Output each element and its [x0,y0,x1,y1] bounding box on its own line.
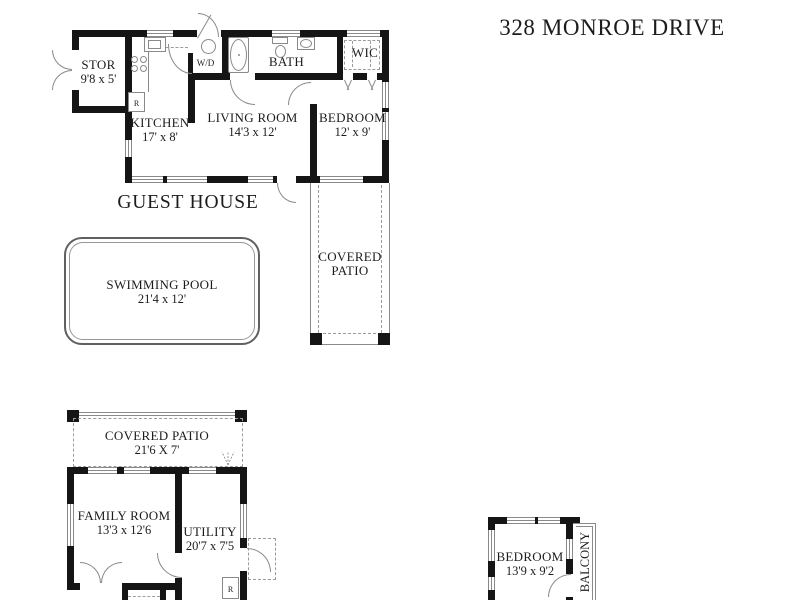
door-swing-arc [548,574,571,597]
door-swing-arc [288,82,311,105]
guest-house-title: GUEST HOUSE [108,192,268,214]
wall [150,467,189,474]
wall [175,474,182,553]
patio-dashes [73,418,243,467]
room-name: WIC [344,46,386,60]
toilet-tank [272,37,288,44]
wall [67,474,74,504]
wall [488,517,507,524]
patio-name: PATIO [310,264,390,278]
room-name: LIVING ROOM [205,111,300,125]
patio-dashes [318,333,381,334]
stove-burner [140,65,147,72]
sprinkler-symbol [220,450,236,466]
wall [125,176,132,183]
window [132,176,163,183]
window [507,517,535,524]
wall [566,524,573,539]
wall [560,517,580,524]
room-dims: 13'9 x 9'2 [488,564,572,578]
stove-burner [131,56,138,63]
room-dims: 9'8 x 5' [72,72,125,86]
door-swing-arc [168,44,192,74]
room-dims: 14'3 x 12' [205,125,300,139]
patio-post [378,333,390,345]
guest-bedroom-label: BEDROOM 12' x 9' [315,111,390,139]
wall [122,583,182,590]
kitchen-sink-basin [148,40,161,49]
wall [125,113,132,140]
wic-label: WIC [344,46,386,60]
window [125,140,132,157]
wall [67,583,80,590]
closet-rod-dashes [352,41,353,67]
patio-edge [389,183,390,345]
plan-title: 328 MONROE DRIVE [492,15,732,41]
wall [67,467,88,474]
bathtub [228,37,249,73]
room-dims: 17' x 8' [125,130,195,144]
wall [310,104,317,176]
bathtub-drain [238,54,240,56]
wall [488,561,495,577]
door-swing-arc [52,70,72,90]
door-swing-arc [230,80,255,105]
window [88,467,117,474]
door-swing-arc [52,50,72,70]
wall [221,30,272,37]
bedroom-balcony-wing: BALCONY BEDROOM 13'9 x 9'2 [0,0,800,600]
patio-name: COVERED [310,250,390,264]
refrigerator-label: R [129,99,144,108]
wall [273,176,277,183]
stoop-wall [122,588,128,600]
wall [117,467,124,474]
bathroom-sink [297,37,315,50]
balcony-edge [595,523,596,600]
kitchen-label: KITCHEN 17' x 8' [125,116,195,144]
refrigerator: R [222,577,239,599]
refrigerator-label: R [223,585,238,594]
wall [222,37,229,73]
patio-edge [79,415,235,416]
room-name: BATH [264,55,309,69]
patio-dashes [381,185,382,333]
guest-covered-patio: COVERED PATIO [0,0,800,600]
closet-opening-mark [343,80,353,90]
wall [380,30,389,37]
window [167,176,207,183]
window [538,517,560,524]
bath-label: BATH [264,55,309,69]
window [124,467,150,474]
main-house: COVERED PATIO 21'6 X 7' [0,0,800,600]
living-room-label: LIVING ROOM 14'3 x 12' [205,111,300,139]
window [67,504,74,546]
room-name: BEDROOM [315,111,390,125]
family-room-label: FAMILY ROOM 13'3 x 12'6 [69,509,179,537]
window [320,176,363,183]
wall [382,108,389,112]
pool-outline [64,237,260,345]
wall [382,37,389,82]
patio-edge [310,183,311,345]
kitchen-sink [144,37,166,52]
door-swing-arc [247,548,271,572]
patio-edge [310,344,390,345]
wall [188,53,193,73]
door-swing-arc [80,562,101,583]
patio-dims: 21'6 X 7' [67,443,247,457]
refrigerator: R [128,92,145,112]
wall [188,73,230,80]
window [488,530,495,561]
balcony-label: BALCONY [578,522,592,600]
room-name: KITCHEN [125,116,195,130]
wall [566,559,573,574]
closet-rod-dashes [370,41,371,67]
door-swing-arc [101,562,122,583]
wall [488,590,495,600]
window [347,30,380,37]
wall [382,140,389,176]
wall [488,524,495,530]
room-name: BEDROOM [488,550,572,564]
wall [216,467,247,474]
counter-dashes [166,47,188,48]
wall [72,90,79,106]
toilet-bowl [275,45,286,58]
bedroom-label: BEDROOM 13'9 x 9'2 [488,550,572,578]
equipment-dashes [248,538,276,580]
counter-edge [148,52,149,92]
wall [163,176,167,183]
wall [353,73,367,80]
closet-opening-mark [367,80,377,90]
wall [72,30,147,37]
pool-inner-outline [69,242,255,340]
door-swing-arc [157,553,182,578]
pool-dims: 21'4 x 12' [64,292,260,306]
stor-label: STOR 9'8 x 5' [72,58,125,86]
guest-patio-label: COVERED PATIO [310,250,390,278]
pool-name: SWIMMING POOL [64,278,260,292]
wall [377,73,382,80]
wall [188,80,195,123]
wall [173,30,197,37]
pool-label: SWIMMING POOL 21'4 x 12' [64,278,260,306]
stoop-dashes [128,596,160,597]
window [248,176,273,183]
window [189,467,216,474]
bathtub-basin [230,39,247,71]
window [382,112,389,140]
balcony-edge [573,523,595,524]
patio-post [310,333,322,345]
closet-rod-dashes [344,40,380,70]
stove-burner [131,65,138,72]
balcony-edge [576,526,592,527]
window [566,539,573,559]
guest-house: R W/D STOR 9'8 x 5' KITCHEN 17' x 8' LIV… [0,0,800,600]
room-name: UTILITY [176,525,244,539]
patio-dashes [318,185,319,333]
wall [72,106,132,113]
stove-burner [140,56,147,63]
patio-post [235,410,247,422]
wall [125,37,132,106]
door-swing-arc [277,183,296,203]
wall [240,538,247,548]
stoop-wall [160,588,166,600]
utility-label: UTILITY 20'7 x 7'5 [176,525,244,553]
main-patio-label: COVERED PATIO 21'6 X 7' [67,429,247,457]
window [488,577,495,590]
window [272,30,300,37]
washer-dryer-label: W/D [190,58,221,68]
room-name: FAMILY ROOM [69,509,179,523]
wall [240,474,247,504]
wall [67,546,74,590]
wall [337,37,343,73]
wall [363,176,389,183]
wall [300,30,347,37]
patio-name: COVERED PATIO [67,429,247,443]
wall [240,571,247,600]
window [382,82,389,108]
door-leaf [197,15,211,39]
room-dims: 12' x 9' [315,125,390,139]
wall [207,176,248,183]
washer [201,39,216,54]
wall [535,517,538,524]
wall [125,157,132,176]
wall [72,37,79,50]
swimming-pool: SWIMMING POOL 21'4 x 12' [0,0,800,600]
room-dims: 20'7 x 7'5 [176,539,244,553]
door-swing-arc [198,13,219,37]
wall [175,578,182,600]
floor-plan: 328 MONROE DRIVE [0,0,800,600]
room-dims: 13'3 x 12'6 [69,523,179,537]
wall [296,176,320,183]
patio-post [67,410,79,422]
balcony-edge [592,526,593,600]
bathroom-sink-basin [300,39,312,48]
room-name: STOR [72,58,125,72]
wall [255,73,343,80]
window [147,30,173,37]
patio-edge [79,412,235,413]
window [240,504,247,538]
